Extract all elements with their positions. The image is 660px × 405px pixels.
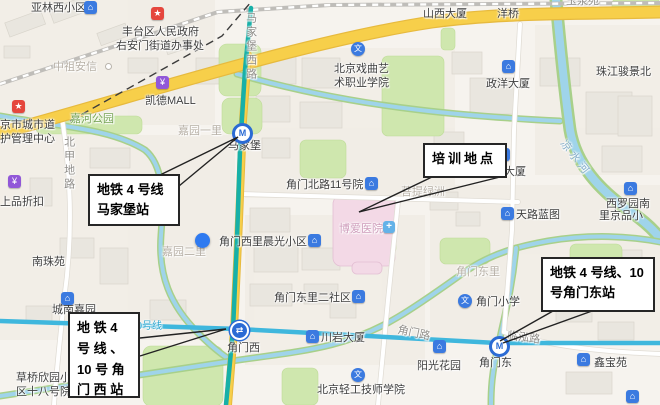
map-label: 角门东里 <box>456 266 500 279</box>
poi-icon-chenguang-community[interactable]: ⌂ <box>308 234 321 247</box>
poi-icon-tianlu-lantu[interactable]: ⌂ <box>501 207 514 220</box>
metro-station-icon-jiaomen-east[interactable]: M <box>489 336 510 357</box>
map-label: 珠江骏景北 <box>596 66 651 79</box>
metro-station-icon-majiapu[interactable]: M <box>232 123 253 144</box>
map-label: 嘉园一里 <box>178 125 222 138</box>
map-label: 山西大厦 <box>423 8 467 21</box>
callout-text-line: 培训地点 <box>432 149 498 169</box>
callout-text-line: 号 线 、 <box>77 339 131 360</box>
poi-icon-yalinxi[interactable]: ⌂ <box>84 1 97 14</box>
callout-metro4-majiapu-station: 地铁 4 号线马家堡站 <box>88 174 180 226</box>
poi-dot-zhongzuanxin[interactable] <box>105 63 112 70</box>
callout-text-line: 地铁 4 号线 <box>97 180 171 200</box>
map-label: 马家堡西路 <box>244 12 257 82</box>
map-canvas[interactable]: 亚林西小区丰台区人民政府右安门街道办事处中祖安信山西大厦洋桥玉泉苑珠江骏景北政洋… <box>0 0 660 405</box>
map-label: 角门小学 <box>476 296 520 309</box>
map-label: 天路蓝图 <box>516 209 560 222</box>
map-label: 南珠苑 <box>32 256 65 269</box>
map-label: 京市城市道 <box>0 119 55 132</box>
map-label: 鑫宝苑 <box>594 357 627 370</box>
map-label: 角门西 <box>227 342 260 355</box>
callout-training-location: 培训地点 <box>423 143 507 178</box>
map-label: 丰台区人民政府 <box>122 26 199 39</box>
map-label: 阳光花园 <box>417 360 461 373</box>
poi-icon-subdistrict-office[interactable]: ★ <box>151 7 164 20</box>
map-label: 角门东里二社区 <box>274 292 351 305</box>
map-label: 玉泉苑 <box>566 0 599 8</box>
map-label: 护管理中心 <box>0 133 55 146</box>
callout-text-line: 马家堡站 <box>97 200 171 220</box>
poi-icon-bottom-right[interactable]: ⌂ <box>626 390 639 403</box>
map-label: 区十八号院 <box>16 386 71 399</box>
map-label: 嘉河公园 <box>70 113 114 126</box>
poi-icon-light-industry-college[interactable]: 文 <box>351 368 365 382</box>
callout-text-line: 门 西 站 <box>77 380 131 401</box>
callout-metro4-10-jiaomen-west-station: 地 铁 4号 线 、10 号 角门 西 站 <box>68 312 140 398</box>
map-label: 北京轻工技师学院 <box>317 384 405 397</box>
poi-icon-zhengyang-tower[interactable]: ⌂ <box>502 60 515 73</box>
map-label: 中祖安信 <box>53 61 97 74</box>
callout-text-line: 号角门东站 <box>550 283 646 303</box>
poi-icon-jiaomen-beilu-11[interactable]: ⌂ <box>365 177 378 190</box>
callout-text-line: 地 铁 4 <box>77 318 131 339</box>
poi-icon-chuanyan-tower[interactable]: ⌂ <box>306 330 319 343</box>
poi-icon-chengnan-jiayuan[interactable]: ⌂ <box>61 292 74 305</box>
map-label: 草桥欣园小 <box>16 372 71 385</box>
map-label: 角门东 <box>479 357 512 370</box>
map-label: 北京戏曲艺 <box>334 63 389 76</box>
poi-icon-xinbaoyuan[interactable]: ⌂ <box>577 353 590 366</box>
poi-icon-xiluoyuan[interactable]: ⌂ <box>624 182 637 195</box>
map-label: 政洋大厦 <box>486 78 530 91</box>
map-label: 角门西里晨光小区 <box>219 236 307 249</box>
poi-icon-yangguang-garden[interactable]: ⌂ <box>433 340 446 353</box>
poi-icon-kaide-mall[interactable]: ¥ <box>156 76 169 89</box>
map-label: 右安门街道办事处 <box>116 40 204 53</box>
map-label: 里京品小 <box>599 210 643 223</box>
map-label: 上品折扣 <box>0 196 44 209</box>
map-label: 菩提绿洲 <box>401 186 445 199</box>
map-label: 术职业学院 <box>334 77 389 90</box>
map-label: 博爱医院 <box>339 223 383 236</box>
map-label: 大厦 <box>504 166 526 179</box>
map-label: 洋桥 <box>497 8 519 21</box>
callout-metro4-10-jiaomen-east-station: 地铁 4 号线、10号角门东站 <box>541 257 655 312</box>
poi-icon-road-maintenance-center[interactable]: ★ <box>12 100 25 113</box>
location-dot-jiayuan-erli[interactable] <box>195 233 210 248</box>
map-label: 北甲地路 <box>62 136 75 192</box>
poi-icon-opera-college[interactable]: 文 <box>351 42 365 56</box>
poi-icon-jiaomen-dongli-2[interactable]: ⌂ <box>352 290 365 303</box>
poi-icon-jiaomen-primary-school[interactable]: 文 <box>458 294 472 308</box>
hospital-icon-boai[interactable]: + <box>383 221 395 233</box>
map-label: 川岩大厦 <box>321 332 365 345</box>
map-label: 嘉园二里 <box>162 246 206 259</box>
map-label: 西罗园南 <box>606 198 650 211</box>
callout-text-line: 10 号 角 <box>77 360 131 381</box>
metro-station-icon-jiaomen-west[interactable]: ⇄ <box>230 321 249 340</box>
map-label: 角门北路11号院 <box>286 179 363 192</box>
map-label: 凯德MALL <box>145 95 196 108</box>
map-label: 亚林西小区 <box>31 2 86 15</box>
callout-text-line: 地铁 4 号线、10 <box>550 263 646 283</box>
poi-icon-shangpin-outlet[interactable]: ¥ <box>8 175 21 188</box>
